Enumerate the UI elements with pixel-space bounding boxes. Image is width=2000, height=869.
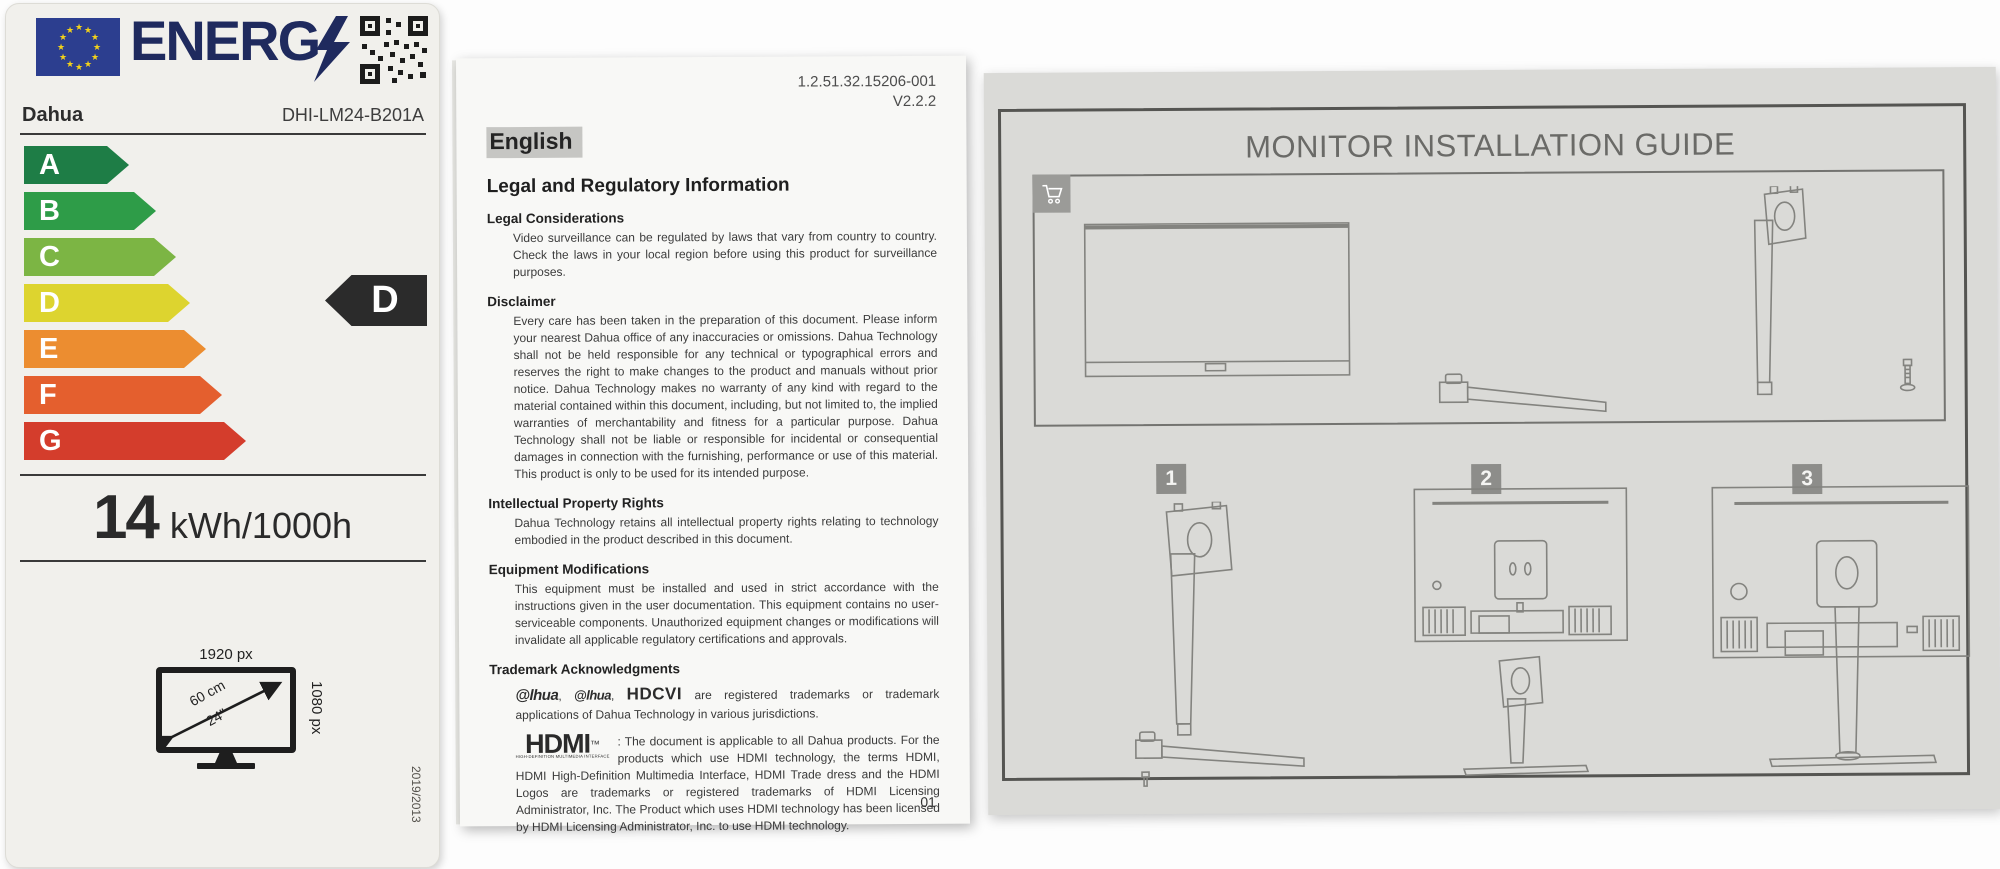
class-arrow-d: D (24, 284, 190, 322)
guide-title: MONITOR INSTALLATION GUIDE (984, 125, 1996, 167)
shopping-cart-icon (1039, 182, 1063, 206)
svg-text:★: ★ (66, 60, 74, 70)
screen-size-pictogram: 1920 px 60 cm 24" 1080 px (156, 646, 296, 769)
section-heading-legal: Legal Considerations (487, 208, 937, 225)
class-arrow-g: G (24, 422, 246, 460)
consumption-unit: kWh/1000h (170, 505, 352, 547)
product-documents-photo: ★★★ ★★★ ★★★ ★★★ ENERG (0, 0, 2000, 869)
divider (20, 474, 426, 476)
section-body-disclaimer: Every care has been taken in the prepara… (513, 310, 938, 483)
step-2-diagram (1406, 484, 1638, 790)
eu-flag-icon: ★★★ ★★★ ★★★ ★★★ (36, 18, 120, 76)
trademark-logos-paragraph: @lhua, @lhua, HDCVI are registered trade… (515, 681, 939, 724)
hdmi-paragraph: HDMI™ HIGH-DEFINITION MULTIMEDIA INTERFA… (516, 732, 941, 836)
class-arrow-b: B (24, 192, 156, 230)
svg-text:★: ★ (84, 60, 92, 70)
section-body-legal: Video surveillance can be regulated by l… (513, 227, 937, 280)
page-number: 01 (920, 794, 936, 810)
section-heading-ipr: Intellectual Property Rights (488, 494, 938, 511)
monitor-pictogram-base (197, 763, 255, 769)
legal-document: 1.2.51.32.15206-001 V2.2.2 English Legal… (456, 56, 970, 827)
hdmi-tm-symbol: ™ (590, 740, 600, 751)
class-arrow-a: A (24, 146, 129, 184)
step-1-diagram (1104, 501, 1326, 797)
supplier-name: Dahua (22, 104, 83, 127)
document-version: V2.2.2 (486, 92, 936, 115)
vertical-resolution: 1080 px (308, 681, 325, 734)
diagonal-arrow (162, 673, 290, 747)
monitor-pictogram-neck (215, 753, 237, 763)
monitor-pictogram: 60 cm 24" 1080 px (156, 667, 296, 753)
rating-letter: D (353, 279, 398, 322)
regulation-number: 2019/2013 (409, 766, 423, 823)
energy-consumption: 14 kWh/1000h (6, 482, 439, 553)
divider (20, 133, 426, 135)
svg-text:★: ★ (66, 26, 74, 36)
energy-class-scale: A B C D E F G (24, 146, 246, 468)
svg-text:★: ★ (75, 23, 83, 33)
class-arrow-f: F (24, 376, 222, 414)
svg-text:★: ★ (57, 43, 65, 53)
stand-column-diagram (1732, 186, 1813, 409)
class-arrow-e: E (24, 330, 206, 368)
section-body-equipment: This equipment must be installed and use… (515, 579, 939, 649)
installation-guide-sheet: MONITOR INSTALLATION GUIDE (984, 67, 2000, 815)
svg-text:★: ★ (75, 63, 83, 73)
hdmi-logo-caption: HIGH-DEFINITION MULTIMEDIA INTERFACE (516, 756, 610, 759)
section-heading-equipment: Equipment Modifications (489, 560, 939, 577)
supplier-row: Dahua DHI-LM24-B201A (22, 104, 424, 127)
qr-code (358, 14, 430, 86)
document-number: 1.2.51.32.15206-001 (486, 72, 936, 95)
screw-diagram (1897, 357, 1917, 402)
stand-base-diagram (1434, 371, 1614, 429)
model-number: DHI-LM24-B201A (282, 105, 424, 126)
parts-overview-box (1032, 169, 1946, 427)
cart-badge (1032, 175, 1070, 213)
legal-document-page: 1.2.51.32.15206-001 V2.2.2 English Legal… (456, 56, 970, 827)
horizontal-resolution: 1920 px (156, 646, 296, 663)
monitor-front-diagram (1083, 217, 1354, 394)
step-3-diagram (1706, 482, 1988, 789)
dahua-logo: @lhua (515, 687, 558, 704)
document-number-block: 1.2.51.32.15206-001 V2.2.2 (486, 72, 936, 115)
divider (20, 560, 426, 562)
hdcvi-logo: HDCVI (627, 684, 683, 703)
lightning-bolt-icon (314, 16, 350, 82)
language-heading: English (486, 126, 582, 158)
svg-text:★: ★ (91, 33, 99, 43)
section-body-ipr: Dahua Technology retains all intellectua… (514, 513, 938, 549)
energy-label-header: ★★★ ★★★ ★★★ ★★★ ENERG (6, 14, 439, 94)
step-1-badge: 1 (1156, 464, 1186, 494)
section-heading-disclaimer: Disclaimer (487, 291, 937, 308)
dahua-logo-small: @lhua (574, 688, 611, 703)
document-title: Legal and Regulatory Information (487, 173, 937, 197)
svg-text:★: ★ (91, 53, 99, 63)
energy-label: ★★★ ★★★ ★★★ ★★★ ENERG (5, 3, 440, 868)
consumption-value: 14 (93, 482, 158, 553)
section-heading-trademark: Trademark Acknowledgments (489, 660, 939, 677)
class-arrow-c: C (24, 238, 176, 276)
rating-indicator: D (325, 275, 427, 326)
svg-text:★: ★ (93, 43, 101, 53)
hdmi-logo: HDMI™ HIGH-DEFINITION MULTIMEDIA INTERFA… (516, 736, 610, 759)
energ-wordmark: ENERG (130, 8, 319, 73)
svg-text:★: ★ (59, 53, 67, 63)
